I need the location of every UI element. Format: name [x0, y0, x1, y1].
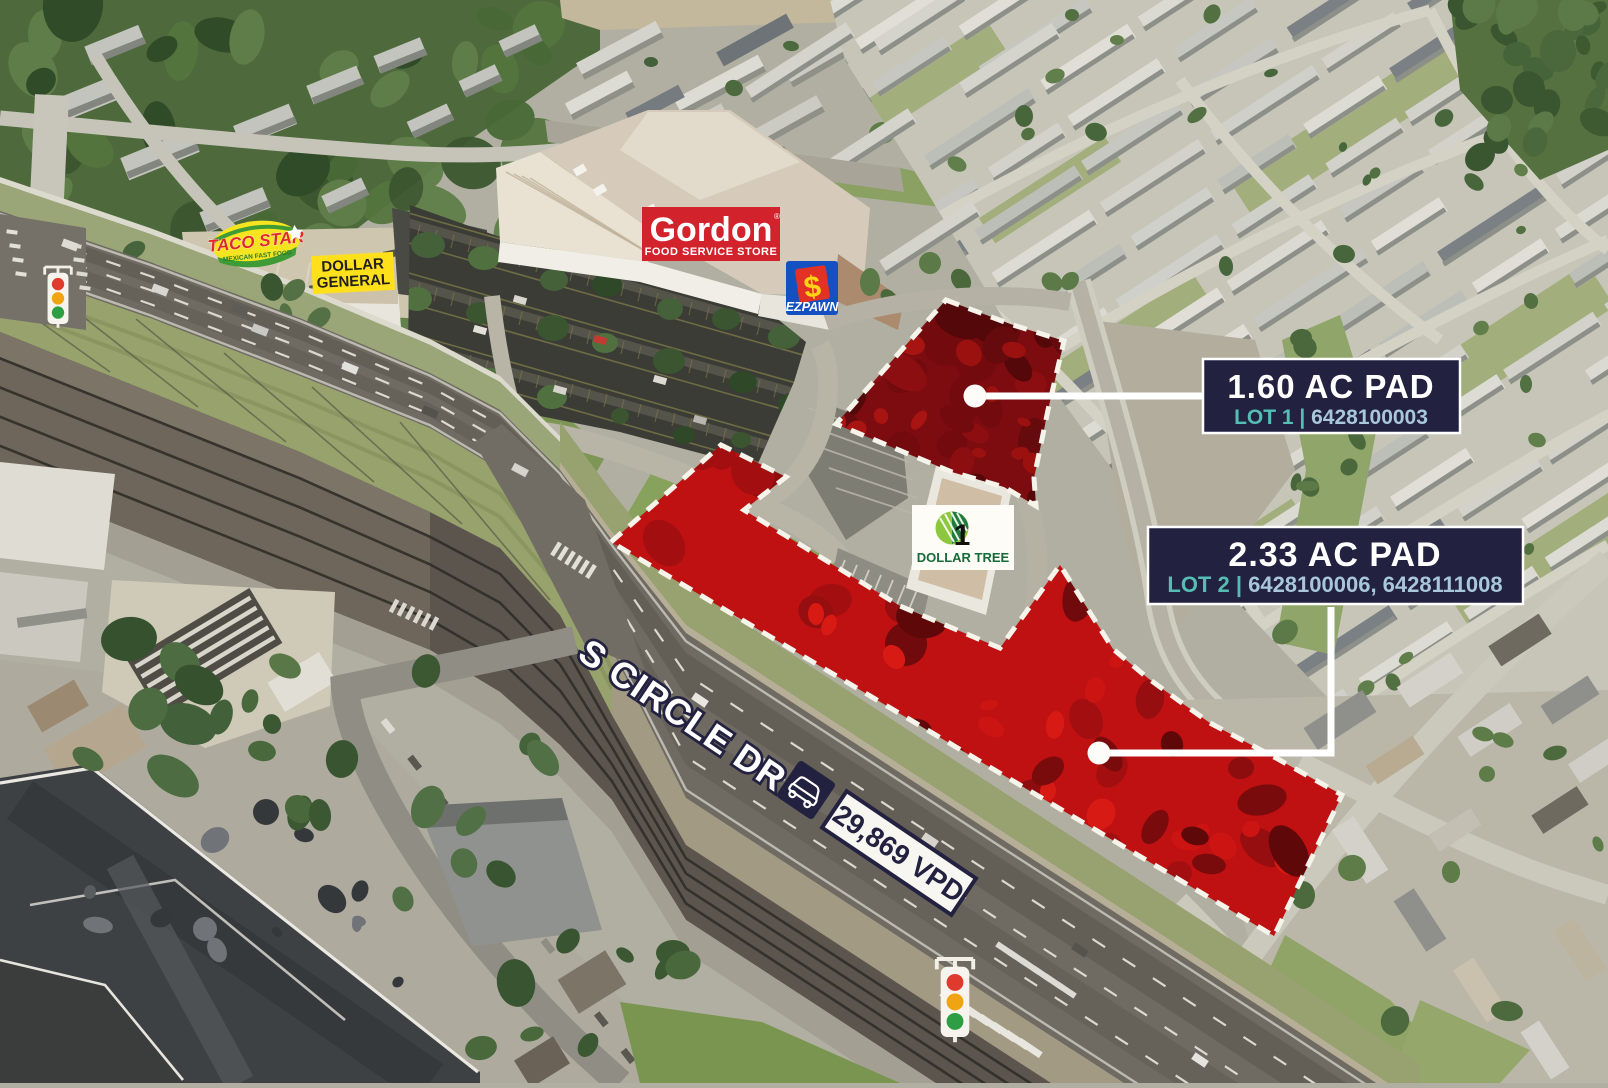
svg-text:1.60 AC PAD: 1.60 AC PAD: [1227, 368, 1434, 405]
svg-text:DOLLAR TREE: DOLLAR TREE: [917, 550, 1010, 565]
svg-text:Gordon: Gordon: [650, 211, 773, 249]
svg-text:FOOD SERVICE STORE: FOOD SERVICE STORE: [645, 246, 778, 258]
svg-text:2.33 AC PAD: 2.33 AC PAD: [1228, 536, 1441, 574]
svg-text:1: 1: [954, 519, 971, 552]
svg-text:LOT 2 | 6428100006, 6428111008: LOT 2 | 6428100006, 6428111008: [1167, 572, 1502, 597]
svg-text:LOT 1 | 6428100003: LOT 1 | 6428100003: [1234, 406, 1428, 429]
svg-text:EZPAWN: EZPAWN: [786, 300, 840, 314]
svg-text:®: ®: [774, 212, 780, 221]
